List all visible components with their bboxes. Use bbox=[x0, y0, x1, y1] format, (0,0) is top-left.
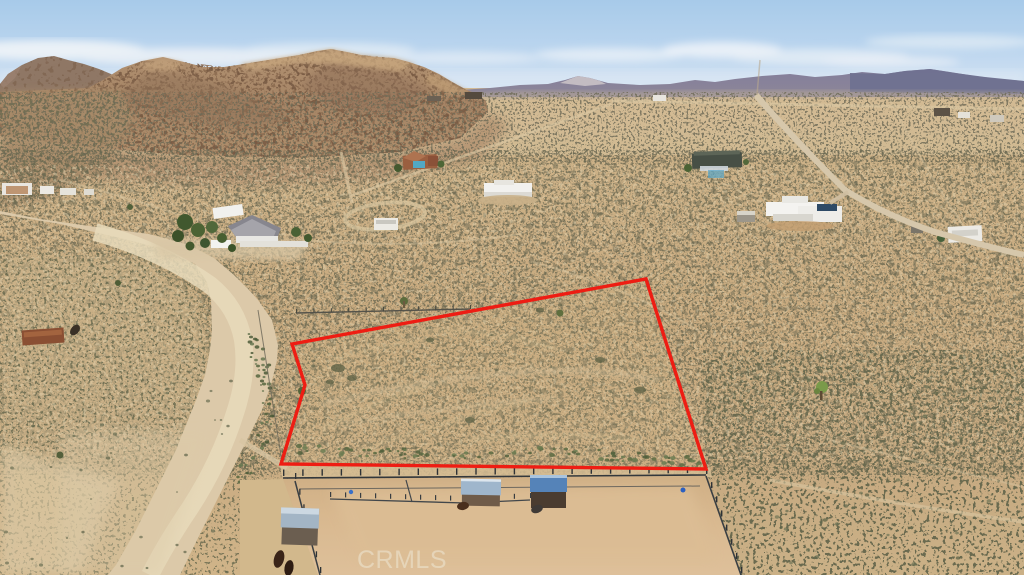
svg-text:CRMLS: CRMLS bbox=[357, 546, 447, 574]
